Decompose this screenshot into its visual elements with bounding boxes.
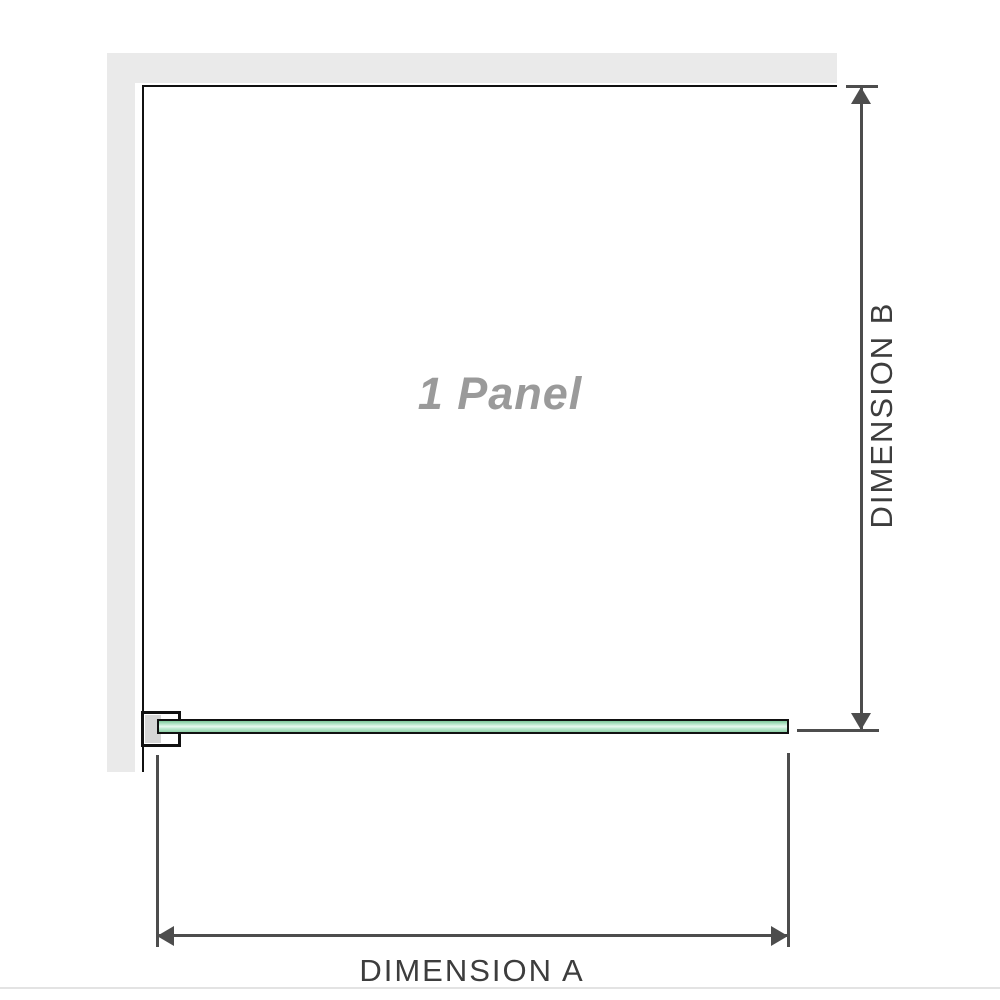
wall-left-bar — [107, 53, 135, 772]
glass-panel — [157, 719, 789, 734]
dimension-a-label: DIMENSION A — [272, 953, 672, 989]
arrow-up-icon — [851, 87, 871, 104]
panel-frame-left-line — [142, 85, 144, 772]
arrow-right-icon — [771, 926, 788, 946]
dimension-a-left-extension-line — [156, 755, 159, 947]
arrow-left-icon — [157, 926, 174, 946]
panel-frame-top-line — [142, 85, 837, 87]
dimension-a-right-extension-line — [787, 753, 790, 947]
dimension-b-label: DIMENSION B — [864, 215, 900, 615]
panel-count-label: 1 Panel — [300, 368, 700, 420]
dimension-a-line — [159, 934, 787, 937]
dimension-b-line — [860, 87, 863, 730]
wall-top-bar — [107, 53, 837, 83]
arrow-down-icon — [851, 713, 871, 730]
bottom-edge-divider — [0, 987, 1000, 989]
panel-dimension-diagram: 1 Panel DIMENSION B DIMENSION A — [0, 0, 1000, 1000]
